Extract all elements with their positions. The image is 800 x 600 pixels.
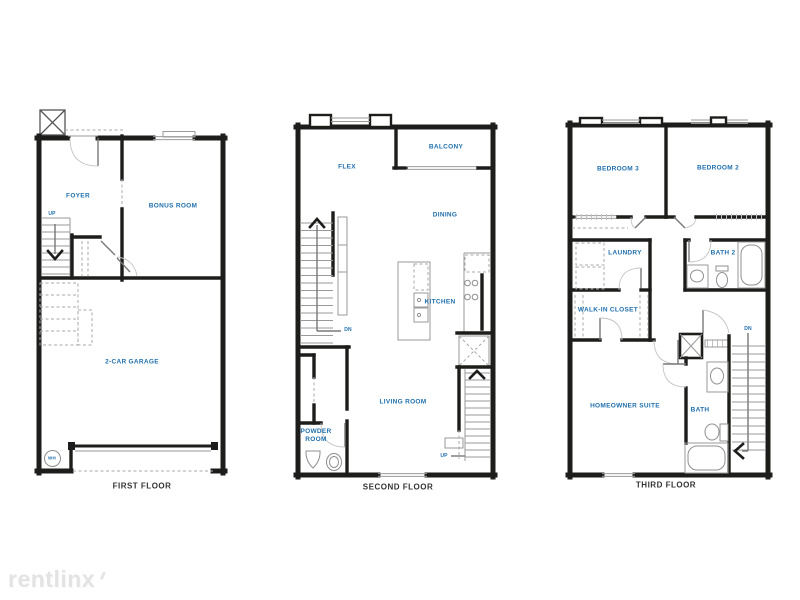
room-label-foyer: FOYER [66, 193, 90, 200]
room-label-living-room: LIVING ROOM [380, 399, 427, 406]
room-label-bath: BATH [691, 407, 710, 414]
hall-door-and-shelf [703, 310, 729, 347]
dryer-icon [576, 267, 604, 289]
exterior-walls [568, 123, 770, 477]
annotation-dn-third: DN [744, 326, 752, 332]
washer-icon [576, 243, 604, 265]
stove-burner-icon [465, 294, 471, 300]
room-label-bedroom-2: BEDROOM 2 [697, 165, 739, 172]
room-label-homeowner-suite: HOMEOWNER SUITE [590, 403, 660, 410]
stove-burner-icon [465, 280, 471, 286]
stairs-up [445, 367, 491, 461]
room-label-bedroom-3: BEDROOM 3 [597, 166, 639, 173]
bathtub-icon [688, 446, 725, 470]
toilet-icon [705, 424, 719, 440]
annotation-up-first: UP [48, 211, 55, 217]
toilet-icon [717, 273, 728, 288]
homeowner-bath [663, 358, 728, 473]
floor-title-first: FIRST FLOOR [113, 482, 172, 491]
first-floor-plan [30, 105, 235, 495]
room-label-walk-in-closet: WALK-IN CLOSET [578, 307, 638, 314]
room-label-garage: 2-CAR GARAGE [105, 359, 159, 366]
hall-walls [650, 240, 685, 340]
entry-door [70, 138, 98, 166]
bedroom3-closet-and-door [570, 216, 666, 228]
room-label-laundry: LAUNDRY [608, 250, 642, 257]
stove-burner-icon [472, 280, 478, 286]
laundry-room [570, 240, 650, 290]
room-label-kitchen: KITCHEN [425, 299, 456, 306]
room-label-balcony: BALCONY [429, 144, 463, 151]
suite-entry-door [650, 340, 678, 364]
third-floor-drawing [556, 100, 781, 495]
pantry [457, 333, 491, 367]
floor-title-third: THIRD FLOOR [636, 481, 696, 490]
floor-title-second: SECOND FLOOR [363, 483, 433, 492]
kitchen-counter [464, 253, 490, 332]
stairs-down [729, 333, 766, 475]
walk-in-closet [570, 295, 650, 340]
annotation-up-second: UP [440, 453, 447, 459]
pedestal-sink-icon [306, 451, 320, 468]
sink-icon [691, 270, 704, 282]
stairs-dashed-overhead [40, 283, 92, 345]
linen-closet [680, 334, 702, 358]
bathtub-icon [741, 245, 762, 285]
third-floor-plan [556, 100, 781, 495]
room-label-bath-2: BATH 2 [711, 250, 736, 257]
first-floor-drawing [30, 105, 235, 495]
room-label-flex: FLEX [338, 164, 356, 171]
understair-closet [72, 235, 137, 278]
floorplan-sheet: FOYER BONUS ROOM 2-CAR GARAGE UP WH FLEX… [0, 0, 800, 600]
watermark-tick-icon [100, 571, 106, 580]
exterior-walls [37, 136, 225, 473]
chimney-box [40, 110, 125, 135]
stove-burner-icon [472, 294, 478, 300]
annotation-dn-second: DN [344, 327, 352, 333]
bath2 [685, 240, 768, 290]
stairs-up [41, 218, 70, 276]
annotation-water-heater: WH [48, 456, 56, 461]
sink-icon [711, 368, 724, 384]
room-label-bonus-room: BONUS ROOM [149, 203, 198, 210]
bedroom2-door [666, 217, 768, 228]
watermark-logo: rentlinx [8, 566, 101, 593]
room-label-powder-room: POWDER ROOM [295, 428, 337, 444]
watermark-text: rentlinx [8, 566, 95, 592]
stairs-down [298, 213, 349, 347]
garage-door [68, 442, 218, 471]
room-label-dining: DINING [433, 212, 458, 219]
